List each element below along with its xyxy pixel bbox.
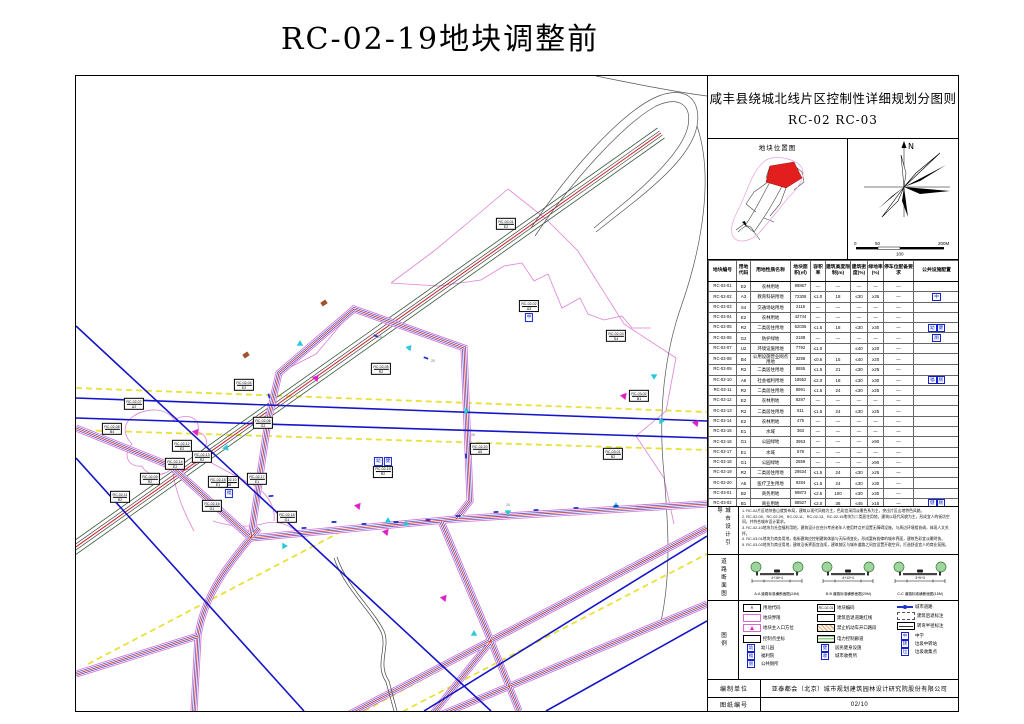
legend-item: RC-02-01地块编码: [817, 604, 895, 612]
legend-swatch-chip: 垃: [897, 649, 913, 655]
plan-sheet-page: RC-02-19地块调整前 152015202420 RC-02-01E2RC-…: [0, 0, 1024, 724]
facility-chip: 中: [932, 293, 941, 302]
svg-text:4+16+4: 4+16+4: [771, 576, 783, 580]
urban-design-notes: 1. RC-02片区地块依山就势布局，建筑以现代风格为主，色彩宜采用淡雅色系为主…: [739, 507, 958, 554]
legend-item: 城市道路: [897, 604, 963, 610]
setback-tick: [423, 356, 428, 359]
legend-swatch-tick: [897, 622, 915, 630]
page-title: RC-02-19地块调整前: [0, 14, 880, 58]
table-header: 建筑高度限制(m): [826, 261, 851, 282]
road-sections-row: 道路断面图 4+16+4 A-A 道路标准横断面图(24M) 4+12+4 B-…: [708, 555, 958, 601]
bridge-icon: [320, 299, 327, 306]
note-line: 1. RC-02片区地块依山就势布局，建筑以现代风格为主，色彩宜采用淡雅色系为主…: [742, 509, 955, 515]
title-block-panel: 咸丰县绕城北线片区控制性详细规划分图则 RC-02 RC-03 地块位置图: [707, 76, 958, 711]
table-row: RC-02-06G2防护绿地2188—————厕: [709, 333, 959, 343]
credit-label: 编制单位: [708, 680, 761, 697]
legend-label: 图例: [708, 601, 739, 679]
section-caption: C-C 道路标准横断面图(15M): [890, 592, 950, 597]
legend-item-label: 福利院: [761, 653, 774, 659]
legend-item: 垃垃圾收集点: [897, 649, 963, 655]
setback-tick: [494, 511, 499, 513]
legend-swatch-entry: [743, 624, 761, 632]
legend-swatch-codebox: RC-02-01: [817, 604, 835, 612]
bridge-marks: [242, 299, 327, 358]
legend-item-label: 地块界限: [763, 615, 781, 621]
setback-tick: [534, 509, 539, 511]
plan-map-canvas: 152015202420: [76, 76, 707, 711]
note-line: 3. RC-02-10地块为社会福利用地，建筑设计应充分考虑老年人使用特点并设置…: [742, 526, 955, 537]
legend-swatch-whiterect: [817, 614, 835, 622]
note-line: 2. RC-02-05、RC-02-09、RC-02-11、RC-02-13、R…: [742, 515, 955, 526]
dimension-texts: 152015202420: [276, 335, 510, 532]
legend-item: 转弯半径标注: [897, 622, 963, 630]
table-header: 用地性质名称: [751, 261, 791, 282]
setback-tick: [269, 495, 274, 497]
legend-item-label: 地块主入口方位: [763, 625, 794, 631]
entrance-arrows-cyan: [222, 340, 664, 635]
setback-tick: [302, 527, 307, 529]
legend-item: 转垃圾中转站: [897, 641, 963, 647]
table-header: 地块面积(㎡): [791, 261, 811, 282]
legend-item: 控制点坐标: [743, 635, 815, 643]
drawing-sheet: 152015202420 RC-02-01E2RC-02-02A3中RC-02-…: [75, 75, 959, 712]
highlighted-plot: [766, 162, 802, 188]
dimension-text: 20: [326, 528, 330, 532]
legend-swatch-dash: [897, 612, 915, 620]
main-entry-icon: [382, 529, 391, 537]
legend-item: 地块主入口方位: [743, 624, 815, 632]
dimension-text: 15: [378, 335, 382, 339]
legend-item-label: 控制点坐标: [763, 636, 785, 642]
table-row: RC-02-18G1公园绿地2559———≥90—: [709, 457, 959, 467]
table-row: RC-02-05R2二类居住用地62035≤1.518≤30≥30—幼健: [709, 323, 959, 333]
legend-item: 福福利院: [743, 653, 815, 659]
main-entry-icon: [354, 503, 363, 511]
entrance-arrow-icon: [651, 374, 657, 379]
setback-tick: [332, 521, 337, 523]
legend-swatch-hatch-g: [817, 635, 835, 643]
entrance-arrow-icon: [282, 543, 287, 549]
dimension-text: 20: [431, 359, 435, 363]
legend-item: 收城市收费所: [817, 653, 895, 659]
legend-item: 电力控制廊道: [817, 635, 895, 643]
setback-tick: [362, 523, 367, 525]
legend-item: 健居民健身设施: [817, 645, 895, 651]
table-row: RC-02-14E2农林用地475—————: [709, 416, 959, 426]
legend-item-label: 建筑后退标注: [917, 613, 943, 619]
table-row: RC-03-02B1商业用地88527≤2.036≤45≥15—健厕: [709, 499, 959, 507]
credit-row: 编制单位 亚泰都会（北京）城市规划建筑园林设计研究院股份有限公司: [708, 680, 958, 698]
power-lines: [76, 326, 707, 711]
table-row: RC-02-11R2二类居住用地8991≤1.524≤30≥25—: [709, 385, 959, 395]
table-row: RC-02-08B4公用设施营业网点用地3298≤0.615≤40≥20—: [709, 354, 959, 365]
dimension-text: 15: [276, 403, 280, 407]
dimension-text: 20: [471, 433, 475, 437]
location-row: 地块位置图: [708, 139, 958, 260]
entrance-arrow-icon: [471, 630, 477, 635]
legend-swatch-whiterect: [743, 635, 761, 643]
legend-item: 厕公共厕所: [743, 661, 815, 667]
section-caption: B-B 道路标准横断面图(20M): [818, 592, 878, 597]
legend-item: 建筑后退标注: [897, 612, 963, 620]
sheet-number-row: 图纸编号 02/10: [708, 698, 958, 711]
location-map: [708, 152, 847, 254]
table-row: RC-02-02A3教育科研用地72308≤1.018≤30≥35—中: [709, 292, 959, 302]
compass-north-label: N: [908, 142, 914, 151]
table-header: 用地代码: [737, 261, 751, 282]
legend-item-label: 转弯半径标注: [917, 623, 943, 629]
svg-text:3+9+3: 3+9+3: [915, 576, 925, 580]
legend-row: 图例 R用地代码地块界限地块主入口方位控制点坐标幼幼儿园福福利院厕公共厕所RC-…: [708, 601, 958, 680]
legend-swatch-chip: 收: [817, 653, 833, 659]
legend-swatch-chip: 中: [897, 633, 913, 639]
setback-tick: [456, 515, 461, 517]
table-header: 停车位配备要求: [884, 261, 914, 282]
sheet-number-value: 02/10: [761, 698, 958, 711]
svg-text:100: 100: [896, 252, 904, 257]
table-row: RC-02-16G1公园绿地3953———≥90—: [709, 437, 959, 447]
table-row: RC-02-10A6社会福利用地18552≤2.018≤30≥30—福厕: [709, 375, 959, 385]
setback-tick: [574, 507, 579, 509]
table-header: 容积率: [811, 261, 826, 282]
highway: [76, 76, 707, 626]
svg-text:4+12+4: 4+12+4: [843, 576, 855, 580]
road-cross-section: 3+9+3 C-C 道路标准横断面图(15M): [890, 558, 950, 597]
legend-item: R用地代码: [743, 604, 815, 612]
legend-item-label: 建筑后退道路红线: [837, 615, 872, 621]
setback-tick: [394, 521, 399, 523]
legend-item-label: 电力控制廊道: [837, 636, 863, 642]
legend-swatch-chip: 幼: [743, 645, 759, 651]
dimension-text: 24: [506, 503, 510, 507]
legend-item: 幼幼儿园: [743, 645, 815, 651]
legend-item-label: 禁止机动车开口路段: [837, 625, 877, 631]
sheet-number-label: 图纸编号: [708, 698, 761, 711]
road-cross-section: 4+16+4 A-A 道路标准横断面图(24M): [747, 558, 807, 597]
legend-item-label: 垃圾中转站: [915, 641, 937, 647]
legend-item-label: 幼儿园: [761, 645, 774, 651]
note-line: 5. RC-03-02地块为商业用地，建筑沿街界面宜连续，建筑前区与城市道路之间…: [742, 543, 955, 549]
plot-boundaries: [125, 189, 676, 531]
legend-swatch-road: [897, 604, 913, 610]
sections-label: 道路断面图: [708, 555, 739, 600]
sheet-title-block: 咸丰县绕城北线片区控制性详细规划分图则 RC-02 RC-03: [708, 76, 958, 139]
yellow-guide-lines: [76, 388, 707, 711]
table-row: RC-03-01B2商务用地99873≤2.5100≤30≥30—: [709, 488, 959, 498]
section-caption: A-A 道路标准横断面图(24M): [747, 592, 807, 597]
table-header: 地块编号: [709, 261, 737, 282]
svg-text:0: 0: [854, 241, 857, 246]
table-row: RC-02-01E2农林用地98867—————: [709, 282, 959, 292]
compass-rose: N: [852, 139, 956, 223]
table-row: RC-02-07U2环境设施用地7792≤1.0≤40≥20—: [709, 343, 959, 353]
roadside-ticks: [268, 334, 619, 529]
table-row: RC-02-17E1水域578—————: [709, 447, 959, 457]
legend-item: 禁止机动车开口路段: [817, 624, 895, 632]
sheet-subtitle: RC-02 RC-03: [708, 113, 958, 127]
entrance-arrow-icon: [297, 340, 303, 345]
road-cross-section: 4+12+4 B-B 道路标准横断面图(20M): [818, 558, 878, 597]
sheet-title: 咸丰县绕城北线片区控制性详细规划分图则: [708, 88, 958, 107]
table-row: RC-02-09R2二类居住用地8655≤1.521≤30≥25—: [709, 365, 959, 375]
stream: [334, 557, 397, 711]
legend-item-label: 公共厕所: [761, 661, 779, 667]
legend-swatch-chip: 厕: [743, 661, 759, 667]
table-header: 公共设施配置: [914, 261, 959, 282]
facility-chip: 福: [928, 376, 937, 385]
legend-swatch-chip: 转: [897, 641, 913, 647]
legend-swatch-chip: 福: [743, 653, 759, 659]
entrance-arrow-icon: [406, 343, 414, 351]
table-header: 建筑密度(%): [851, 261, 868, 282]
table-row: RC-02-13R2二类居住用地811≤1.524≤30≥25—: [709, 406, 959, 416]
legend-item-label: 居民健身设施: [835, 645, 861, 651]
facility-chip: 厕: [937, 376, 946, 385]
legend-item: 地块界限: [743, 614, 815, 622]
compass-cell: N 0 50 100 200M: [848, 139, 958, 259]
legend-item-label: 城市道路: [915, 604, 933, 610]
main-entry-icon: [440, 595, 449, 603]
location-map-cell: 地块位置图: [708, 139, 848, 259]
facility-chip: 幼: [928, 324, 937, 333]
legend-swatch-hatch-o: [817, 624, 835, 632]
location-map-title: 地块位置图: [708, 139, 847, 152]
setback-tick: [614, 505, 619, 507]
svg-text:200M: 200M: [938, 241, 950, 246]
scale-bar: 0 50 100 200M: [850, 239, 958, 257]
legend-item-label: 垃圾收集点: [915, 649, 937, 655]
svg-text:50: 50: [875, 241, 881, 246]
plot-control-table: 地块编号用地代码用地性质名称地块面积(㎡)容积率建筑高度限制(m)建筑密度(%)…: [708, 260, 958, 507]
roads-layer-4: [76, 309, 707, 711]
road-cross-sections: 4+16+4 A-A 道路标准横断面图(24M) 4+12+4 B-B 道路标准…: [739, 555, 958, 600]
control-table-wrap: 地块编号用地代码用地性质名称地块面积(㎡)容积率建筑高度限制(m)建筑密度(%)…: [708, 260, 958, 507]
legend-item: 中中学: [897, 633, 963, 639]
facility-chip: 健: [928, 499, 937, 507]
plan-map: 152015202420 RC-02-01E2RC-02-02A3中RC-02-…: [76, 76, 707, 711]
legend-swatch-pinkrect: [743, 614, 761, 622]
entrance-arrow-icon: [385, 517, 391, 522]
legend-item-label: 城市收费所: [835, 653, 857, 659]
table-row: RC-02-04E2农林用地42744—————: [709, 312, 959, 322]
main-entry-icon: [620, 393, 629, 401]
legend: R用地代码地块界限地块主入口方位控制点坐标幼幼儿园福福利院厕公共厕所RC-02-…: [739, 601, 965, 679]
credit-value: 亚泰都会（北京）城市规划建筑园林设计研究院股份有限公司: [761, 680, 958, 697]
legend-item-label: 地块编码: [837, 605, 855, 611]
facility-chip: 健: [937, 324, 946, 333]
legend-swatch-codebox: R: [743, 604, 761, 612]
legend-item-label: 中学: [915, 633, 924, 639]
legend-item: 建筑后退道路红线: [817, 614, 895, 622]
table-row: RC-02-03S4交通场站用地2118—————: [709, 302, 959, 312]
notes-section-label: 城市设计引导: [708, 507, 739, 554]
facility-chip: 厕: [932, 334, 941, 343]
table-row: RC-02-19R2二类居住用地29534≤1.524≤30≥25—: [709, 468, 959, 478]
legend-item-label: 用地代码: [763, 605, 781, 611]
table-row: RC-02-15E1水域363—————: [709, 426, 959, 436]
bridge-icon: [242, 351, 249, 358]
setback-tick: [426, 519, 431, 521]
table-header: 绿地率(%): [868, 261, 884, 282]
facility-chip: 厕: [937, 499, 946, 507]
legend-swatch-chip: 健: [817, 645, 833, 651]
table-row: RC-02-20A5医疗卫生用地9284≤1.524≤30≥30—: [709, 478, 959, 488]
urban-design-notes-row: 城市设计引导 1. RC-02片区地块依山就势布局，建筑以现代风格为主，色彩宜采…: [708, 507, 958, 555]
table-row: RC-02-12E2农林用地8297—————: [709, 396, 959, 406]
